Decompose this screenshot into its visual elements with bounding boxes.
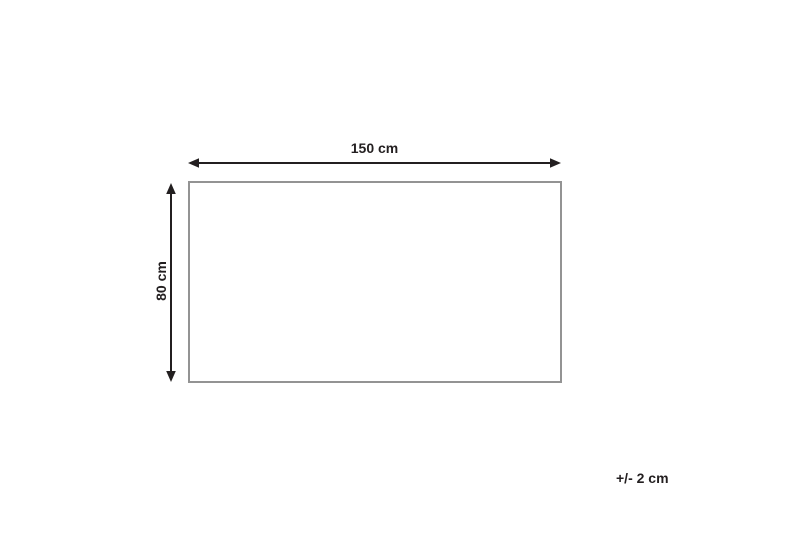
width-dimension-arrow-icon [188, 157, 561, 169]
dimension-diagram: 150 cm 80 cm +/- 2 cm [0, 0, 800, 533]
product-outline-rectangle [188, 181, 562, 383]
height-dimension-label: 80 cm [153, 261, 169, 301]
tolerance-label: +/- 2 cm [616, 470, 669, 486]
width-dimension-label: 150 cm [188, 140, 561, 156]
